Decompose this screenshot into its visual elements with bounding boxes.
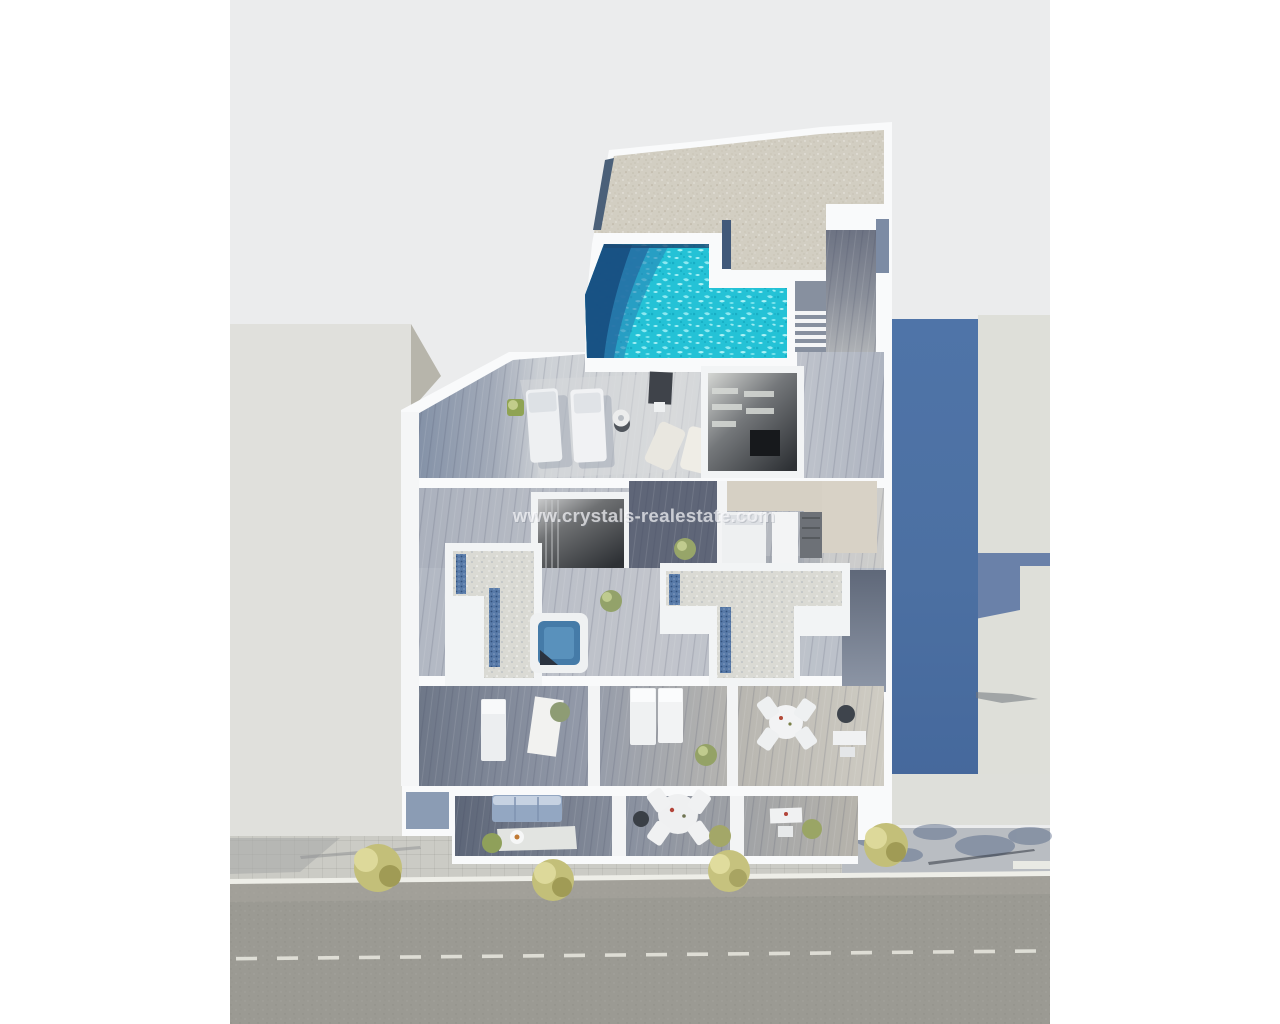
svg-text:www.crystals-realestate.com: www.crystals-realestate.com: [512, 505, 776, 526]
